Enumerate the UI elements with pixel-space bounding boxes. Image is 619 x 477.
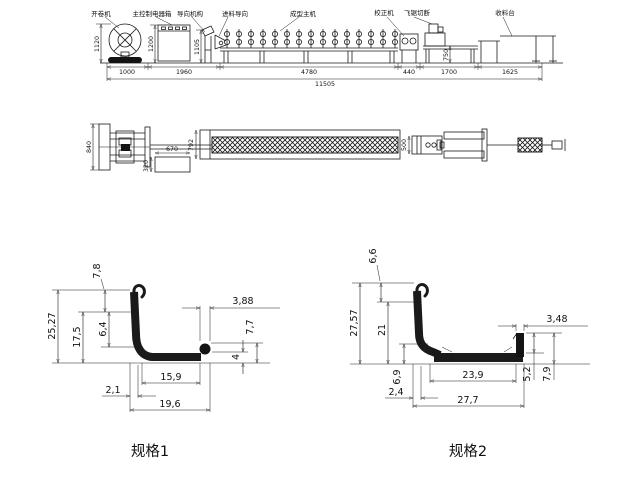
uncoiler-plan: 840 (86, 124, 150, 170)
elevation-dim-chain: 1000 1960 4780 440 1700 1625 11505 (107, 63, 542, 88)
uncoiler-elevation (108, 24, 142, 63)
dim-p2-flange-width: 3,48 (546, 314, 567, 325)
profile1-dims: 25,27 17,5 7,8 6,4 3,88 7,7 4 15,9 (47, 263, 280, 412)
drawing-sheet: 开卷机 主控制电器箱 导向机构 进料导向 成型主机 校正机 飞锯切断 收料台 1… (0, 0, 619, 477)
dim-p2-low-height: 6,9 (392, 369, 403, 384)
dim-seg-4780: 4780 (301, 69, 317, 76)
guide-stand-elevation (202, 26, 214, 63)
label-forming-machine: 成型主机 (290, 9, 317, 18)
saw-carriage-plan (440, 129, 565, 161)
label-control-box: 主控制电器箱 (133, 9, 173, 18)
dim-machine-width: 792 (188, 139, 195, 151)
dim-p2-overall-width: 27,7 (457, 395, 478, 406)
dim-p2-flange-outer: 7,9 (542, 366, 553, 381)
dim-straightener-length: 500 (401, 139, 408, 151)
profile-spec2: 27,57 6,6 21 6,9 2,4 23,9 27,7 3,48 (349, 248, 590, 460)
plan-view: 840 670 320 792 500 (86, 124, 565, 172)
dim-p1-inner-width: 15,9 (160, 372, 181, 383)
technical-drawing: 开卷机 主控制电器箱 导向机构 进料导向 成型主机 校正机 飞锯切断 收料台 1… (0, 0, 619, 477)
dim-p2-top: 6,6 (368, 248, 379, 263)
control-box-elevation (158, 25, 190, 61)
dim-control-height: 1200 (148, 36, 155, 52)
dim-p1-overall-width: 19,6 (159, 399, 180, 410)
profile1-shape (134, 286, 211, 357)
profile2-dims: 27,57 6,6 21 6,9 2,4 23,9 27,7 3,48 (349, 248, 590, 408)
dim-total-length: 11505 (315, 81, 335, 88)
dim-guide-height: 1105 (194, 39, 201, 55)
profile2-shape (417, 285, 524, 358)
dim-box-width: 320 (143, 160, 150, 172)
flying-saw-elevation (423, 24, 478, 63)
straightener-elevation (400, 34, 418, 63)
label-straightener: 校正机 (374, 8, 394, 17)
label-flying-saw: 飞锯切断 (404, 8, 431, 17)
dim-p1-top: 7,8 (92, 263, 103, 278)
label-guide: 导向机构 (177, 9, 204, 18)
dim-seg-1700: 1700 (441, 69, 457, 76)
dim-p1-thickness: 2,1 (105, 385, 120, 396)
dim-p1-wall-height: 17,5 (72, 326, 83, 347)
dim-box-length: 670 (166, 146, 178, 153)
dim-p1-mid-height: 6,4 (98, 321, 109, 336)
profile2-title: 规格2 (449, 443, 487, 460)
dim-saw-table-height: 750 (443, 49, 450, 61)
elevation-vertical-dims: 1120 1200 1105 750 (94, 24, 450, 63)
dim-seg-1000: 1000 (119, 69, 135, 76)
collect-table-elevation (500, 36, 557, 63)
dim-uncoiler-height: 1120 (94, 36, 101, 52)
profile-spec1: 25,27 17,5 7,8 6,4 3,88 7,7 4 15,9 (47, 263, 280, 460)
profile1-title: 规格1 (131, 443, 169, 460)
strip-line-plan (150, 145, 212, 149)
dim-p2-overall-height: 27,57 (349, 309, 360, 336)
dim-p2-inner-width: 23,9 (462, 370, 483, 381)
dim-seg-440: 440 (403, 69, 415, 76)
dim-uncoiler-width: 840 (86, 141, 93, 153)
dim-p1-base-height: 4 (231, 354, 242, 360)
dim-p2-thickness: 2,4 (388, 387, 403, 398)
label-feed-guide: 进料导向 (222, 9, 248, 18)
dim-seg-1625: 1625 (502, 69, 518, 76)
dim-p1-bead-width: 3,88 (232, 296, 253, 307)
dim-p1-overall-height: 25,27 (47, 312, 58, 339)
dim-p1-bead-height: 7,7 (245, 319, 256, 334)
straightener-plan: 500 (401, 136, 442, 154)
dim-p2-wall-height: 21 (377, 324, 388, 336)
elevation-view: 开卷机 主控制电器箱 导向机构 进料导向 成型主机 校正机 飞锯切断 收料台 1… (91, 8, 563, 88)
outfeed-table-elevation (478, 41, 500, 63)
label-collect-table: 收料台 (495, 8, 515, 17)
forming-machine-plan: 792 (188, 130, 400, 159)
label-uncoiler: 开卷机 (91, 9, 111, 18)
dim-seg-1960: 1960 (176, 69, 192, 76)
dim-p2-flange-inner: 5,2 (522, 366, 533, 381)
roll-former-elevation (220, 29, 398, 63)
